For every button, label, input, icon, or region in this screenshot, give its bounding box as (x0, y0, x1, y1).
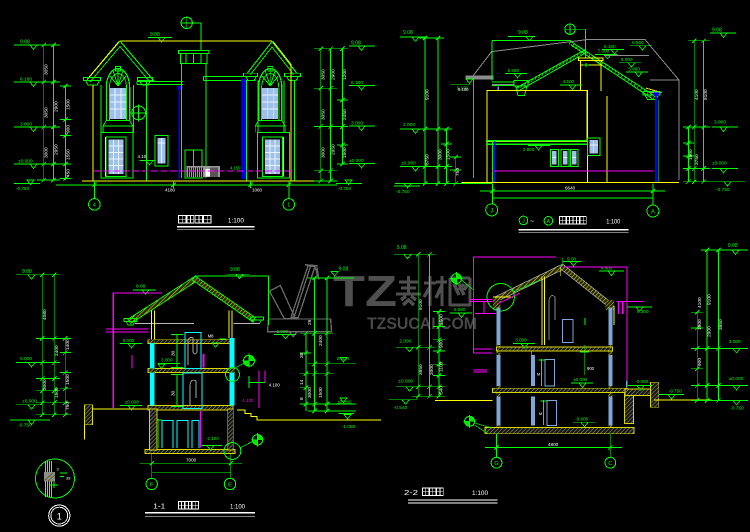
svg-text:3.000: 3.000 (161, 358, 173, 363)
svg-text:3000: 3000 (321, 147, 327, 158)
svg-text:4180: 4180 (165, 188, 176, 193)
svg-text:9.08: 9.08 (20, 39, 30, 45)
svg-text:-1.100: -1.100 (206, 436, 219, 441)
svg-text:30: 30 (171, 390, 177, 396)
svg-text:4800: 4800 (548, 442, 559, 447)
svg-text:F: F (150, 482, 154, 488)
svg-text:3.000: 3.000 (515, 338, 527, 343)
svg-text:9100: 9100 (425, 89, 431, 100)
svg-text:±0.000: ±0.000 (573, 377, 587, 382)
svg-text:J: J (522, 219, 525, 225)
svg-text:6.580: 6.580 (454, 307, 466, 312)
svg-text:-0.750: -0.750 (16, 186, 29, 191)
svg-text:2.000: 2.000 (399, 338, 411, 344)
svg-text:3050: 3050 (321, 69, 327, 80)
svg-text:6.180: 6.180 (604, 44, 616, 49)
svg-text:5.000: 5.000 (277, 329, 289, 334)
svg-text:3750: 3750 (425, 154, 431, 165)
svg-text:6.560: 6.560 (508, 68, 520, 73)
svg-text:1100: 1100 (438, 361, 444, 372)
svg-text:9.08: 9.08 (22, 269, 32, 275)
svg-text:750: 750 (455, 168, 461, 176)
svg-text:2900: 2900 (331, 69, 337, 80)
svg-text:3950: 3950 (418, 364, 424, 375)
svg-text:M8: M8 (208, 334, 214, 339)
svg-text:750: 750 (65, 402, 71, 410)
svg-text:29: 29 (307, 319, 313, 325)
svg-text:2-2: 2-2 (404, 488, 418, 497)
svg-text:±0.000: ±0.000 (398, 378, 413, 384)
svg-text:4080: 4080 (42, 309, 48, 320)
svg-text:1500: 1500 (438, 314, 444, 325)
svg-text:±0.000: ±0.000 (401, 161, 416, 167)
svg-text:1:100: 1:100 (228, 218, 245, 225)
svg-text:2950: 2950 (331, 144, 337, 155)
svg-text:4100: 4100 (697, 297, 703, 308)
svg-text:1:100: 1:100 (606, 219, 621, 226)
svg-text:~: ~ (530, 219, 534, 226)
svg-text:3050: 3050 (44, 107, 50, 118)
svg-text:A: A (547, 219, 551, 225)
svg-text:-0.540: -0.540 (394, 405, 408, 411)
svg-text:A: A (651, 209, 655, 215)
svg-text:3950: 3950 (718, 319, 724, 330)
svg-text:5.880: 5.880 (628, 66, 640, 71)
svg-text:9.08: 9.08 (728, 243, 738, 249)
svg-text:TZ: TZ (333, 267, 397, 316)
svg-text:1500: 1500 (54, 387, 60, 398)
svg-text:2400: 2400 (54, 345, 60, 356)
svg-text:-0.750: -0.750 (669, 388, 682, 393)
svg-text:1:100: 1:100 (230, 504, 246, 511)
svg-text:9100: 9100 (707, 294, 713, 305)
svg-text:4.150: 4.150 (230, 166, 241, 171)
svg-text:-0.750: -0.750 (338, 186, 351, 191)
svg-text:1200: 1200 (342, 69, 348, 80)
svg-text:9100: 9100 (418, 299, 424, 310)
svg-text:9.08: 9.08 (567, 256, 576, 261)
svg-text:-0.750: -0.750 (396, 189, 410, 195)
svg-text:8: 8 (299, 397, 305, 400)
svg-text:4.100: 4.100 (269, 382, 281, 387)
svg-text:1550: 1550 (66, 149, 72, 160)
svg-text:900: 900 (438, 340, 444, 348)
svg-text:1500: 1500 (66, 99, 72, 110)
svg-text:2900: 2900 (707, 326, 713, 337)
svg-text:2450: 2450 (342, 109, 348, 120)
svg-text:4100: 4100 (694, 89, 700, 100)
svg-text:38: 38 (66, 476, 71, 481)
svg-text:3.000: 3.000 (403, 122, 415, 128)
svg-text:9.08: 9.08 (403, 30, 413, 36)
svg-text:14: 14 (299, 379, 305, 385)
svg-text:2.800: 2.800 (523, 147, 535, 152)
svg-text:9.08: 9.08 (712, 27, 722, 33)
svg-text:3050: 3050 (321, 109, 327, 120)
svg-text:J: J (490, 208, 493, 214)
svg-text:±0.000: ±0.000 (712, 161, 727, 167)
svg-text:540: 540 (438, 386, 444, 394)
svg-text:G: G (494, 461, 498, 467)
svg-text:8.08: 8.08 (136, 284, 146, 290)
svg-text:1500: 1500 (446, 149, 452, 160)
svg-text:1400: 1400 (65, 339, 71, 350)
svg-text:3050: 3050 (44, 64, 50, 75)
svg-text:M: M (537, 372, 540, 377)
svg-text:9.08: 9.08 (230, 267, 240, 273)
svg-text:1500: 1500 (688, 149, 694, 160)
svg-text:38: 38 (299, 352, 305, 358)
svg-text:3750: 3750 (694, 154, 700, 165)
svg-text:7000: 7000 (186, 458, 197, 463)
svg-text:2900: 2900 (54, 101, 60, 112)
svg-text:±0.000: ±0.000 (22, 398, 37, 404)
svg-text:±0.000: ±0.000 (729, 376, 744, 382)
svg-text:1500: 1500 (318, 387, 324, 398)
svg-text:C: C (608, 461, 612, 467)
svg-text:1500: 1500 (342, 147, 348, 158)
svg-text:900: 900 (697, 358, 703, 366)
svg-text:5.000: 5.000 (20, 356, 32, 362)
svg-text:M: M (539, 411, 542, 416)
svg-text:1: 1 (57, 512, 62, 522)
svg-text:6.000: 6.000 (621, 57, 633, 62)
svg-text:1500: 1500 (65, 374, 71, 385)
svg-text:5.000: 5.000 (123, 338, 135, 343)
svg-text:-0.050: -0.050 (635, 379, 648, 384)
svg-text:3000: 3000 (438, 149, 444, 160)
svg-text:-0.600: -0.600 (575, 416, 588, 421)
svg-text:3000: 3000 (307, 387, 313, 398)
svg-text:9.100: 9.100 (458, 87, 469, 92)
svg-text:3.000: 3.000 (714, 119, 726, 125)
svg-text:±0.000: ±0.000 (125, 400, 139, 405)
svg-text:1800: 1800 (697, 319, 703, 330)
svg-text:2950: 2950 (54, 144, 60, 155)
svg-text:-0.750: -0.750 (716, 187, 730, 193)
svg-text:4.600: 4.600 (601, 265, 613, 270)
svg-text:-1.100: -1.100 (241, 398, 254, 403)
svg-text:E: E (228, 482, 232, 488)
svg-text:-0.750: -0.750 (730, 405, 744, 411)
svg-text:1060: 1060 (252, 188, 263, 193)
svg-text:2400: 2400 (318, 335, 324, 346)
svg-text:3000: 3000 (44, 147, 50, 158)
svg-text:900: 900 (587, 366, 595, 371)
svg-text:900: 900 (66, 125, 72, 133)
svg-text:2000: 2000 (429, 364, 435, 375)
svg-text:9.08: 9.08 (339, 267, 349, 273)
svg-text:4: 4 (93, 203, 96, 209)
svg-text:6.560: 6.560 (632, 40, 644, 45)
svg-text:1-1: 1-1 (153, 502, 165, 511)
svg-text:9.08: 9.08 (518, 30, 528, 36)
svg-text:450: 450 (66, 169, 72, 177)
svg-text:9.08: 9.08 (397, 245, 407, 251)
svg-text:9100: 9100 (703, 89, 709, 100)
svg-text:-1.050: -1.050 (342, 424, 356, 430)
svg-text:1:100: 1:100 (472, 490, 489, 497)
svg-text:6640: 6640 (565, 186, 576, 191)
svg-text:3.000: 3.000 (729, 339, 741, 345)
svg-text:3000: 3000 (42, 379, 48, 390)
svg-text:-0.750: -0.750 (18, 423, 32, 429)
svg-text:1: 1 (287, 203, 290, 209)
svg-text:4.500: 4.500 (563, 79, 575, 84)
svg-text:30: 30 (171, 350, 177, 356)
svg-text:4.10: 4.10 (138, 154, 147, 159)
